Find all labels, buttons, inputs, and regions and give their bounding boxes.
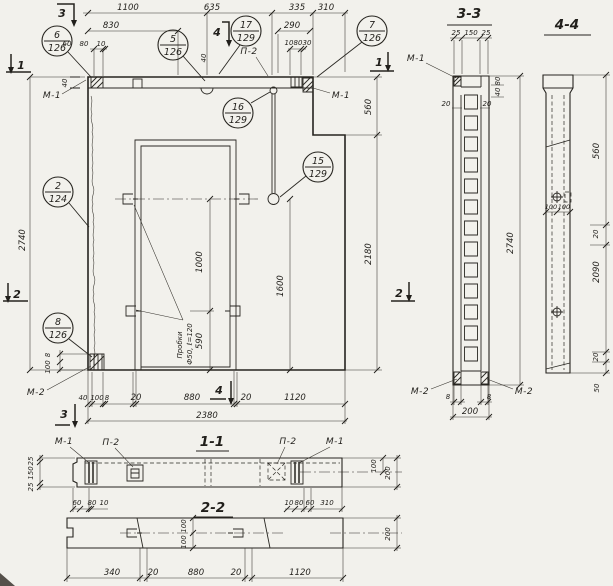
dim-1100: 1100 xyxy=(117,3,139,13)
dim-40-mid: 40 xyxy=(200,53,208,62)
svg-text:126: 126 xyxy=(48,43,66,54)
plug-note-line1: Пробки xyxy=(176,331,184,359)
dim-8-bottom: 8 xyxy=(105,394,110,402)
label-m1-right-1-1: М-1 xyxy=(326,437,344,447)
dim-20b-4-4: 20 xyxy=(592,352,600,361)
svg-text:16: 16 xyxy=(232,102,244,113)
svg-text:15: 15 xyxy=(312,156,324,167)
dim-80-3-3: 80 xyxy=(494,76,502,85)
dim-830: 830 xyxy=(103,21,119,31)
marker-2-right: 2 xyxy=(395,287,403,300)
dim-590: 590 xyxy=(195,333,205,349)
dim-560-4-4: 560 xyxy=(592,143,602,159)
svg-text:7: 7 xyxy=(369,20,375,31)
section-1-1-title: 1-1 xyxy=(200,434,224,450)
dim-25a-3-3: 25 xyxy=(452,29,461,37)
dim-880: 880 xyxy=(184,393,200,403)
dim-880-2-2: 880 xyxy=(188,568,204,578)
dim-100b-2-2: 100 xyxy=(180,535,188,549)
dim-290: 290 xyxy=(284,21,300,31)
marker-4-top: 4 xyxy=(212,26,221,39)
svg-text:2: 2 xyxy=(55,181,61,192)
svg-text:6: 6 xyxy=(54,30,60,41)
svg-text:126: 126 xyxy=(363,33,381,44)
label-m1-3-3: М-1 xyxy=(407,54,425,64)
dim-20-left-3-3: 20 xyxy=(442,100,451,108)
dim-150-3-3: 150 xyxy=(464,29,478,37)
dim-100a-2-2: 100 xyxy=(180,519,188,533)
dim-50-4-4: 50 xyxy=(593,383,601,392)
dim-100a-4-4: 100 xyxy=(545,203,557,211)
dim-25b-1-1: 25 xyxy=(27,482,35,491)
dim-8-left-3-3: 8 xyxy=(446,393,451,401)
dim-2380: 2380 xyxy=(196,411,218,421)
dim-30: 30 xyxy=(303,39,312,47)
svg-text:17: 17 xyxy=(240,20,252,31)
label-m1-topright: М-1 xyxy=(332,91,350,101)
dim-40-3-3: 40 xyxy=(494,87,502,96)
label-p2-top: П-2 xyxy=(240,47,257,57)
marker-4-bottom: 4 xyxy=(214,384,223,397)
svg-text:129: 129 xyxy=(237,33,255,44)
dim-10r-1-1: 10 xyxy=(285,499,294,507)
label-m1-left-1-1: М-1 xyxy=(55,437,73,447)
dim-25a-1-1: 25 xyxy=(27,456,35,465)
marker-3-bottom: 3 xyxy=(60,408,68,421)
dim-2740-3-3: 2740 xyxy=(506,232,516,254)
dim-335: 335 xyxy=(289,3,305,13)
dim-20a-2-2: 20 xyxy=(148,568,159,578)
dim-80: 80 xyxy=(80,40,89,48)
dim-25b-3-3: 25 xyxy=(482,29,491,37)
marker-2-left: 2 xyxy=(13,288,21,301)
label-p2-right-1-1: П-2 xyxy=(279,437,296,447)
svg-text:129: 129 xyxy=(309,169,327,180)
svg-text:126: 126 xyxy=(49,330,67,341)
dim-20a-4-4: 20 xyxy=(592,229,600,238)
marker-1-right: 1 xyxy=(375,56,383,69)
dim-20-right: 20 xyxy=(241,393,252,403)
svg-text:129: 129 xyxy=(229,115,247,126)
dim-200-3-3: 200 xyxy=(462,407,478,417)
drawing-sheet: 1100 635 335 310 830 290 60 80 10 10 80 … xyxy=(0,0,613,586)
marker-1-left: 1 xyxy=(17,59,25,72)
dim-8-corner: 8 xyxy=(44,352,52,357)
dim-200-2-2: 200 xyxy=(384,527,392,541)
dim-10-1-1: 10 xyxy=(100,499,109,507)
svg-text:124: 124 xyxy=(49,194,67,205)
dim-10: 10 xyxy=(97,40,106,48)
dim-20b-2-2: 20 xyxy=(231,568,242,578)
label-m2-right-3-3: М-2 xyxy=(515,387,533,397)
section-2-2-title: 2-2 xyxy=(201,500,225,516)
dim-200-1-1: 200 xyxy=(384,466,392,480)
dim-2180: 2180 xyxy=(364,243,374,265)
dim-310-1-1: 310 xyxy=(320,499,334,507)
dim-100b-4-4: 100 xyxy=(558,203,570,211)
dim-100-bottom: 100 xyxy=(90,394,104,402)
dim-60r-1-1: 60 xyxy=(306,499,315,507)
label-m2-bottomleft: М-2 xyxy=(27,388,45,398)
dim-8-right-3-3: 8 xyxy=(487,393,492,401)
dim-340-2-2: 340 xyxy=(104,568,120,578)
dim-100-corner: 100 xyxy=(44,360,52,374)
dim-1120: 1120 xyxy=(284,393,306,403)
marker-3-top: 3 xyxy=(58,7,66,20)
panel-working-drawing: 1100 635 335 310 830 290 60 80 10 10 80 … xyxy=(0,0,613,586)
plug-note-line2: Ф50, ℓ=120 xyxy=(186,323,194,365)
section-3-3-title: 3-3 xyxy=(457,6,481,22)
dim-1600: 1600 xyxy=(276,275,286,297)
svg-text:126: 126 xyxy=(164,47,182,58)
dim-20-left: 20 xyxy=(131,393,142,403)
dim-635: 635 xyxy=(204,3,220,13)
label-p2-left-1-1: П-2 xyxy=(102,438,119,448)
dim-80r-1-1: 80 xyxy=(295,499,304,507)
dim-40-bottom: 40 xyxy=(79,394,88,402)
svg-text:5: 5 xyxy=(170,34,176,45)
dim-20-right-3-3: 20 xyxy=(483,100,492,108)
dim-2740: 2740 xyxy=(18,229,28,251)
dim-40-left: 40 xyxy=(61,78,69,87)
section-4-4-title: 4-4 xyxy=(554,17,579,33)
dim-2090-4-4: 2090 xyxy=(592,261,602,283)
svg-text:8: 8 xyxy=(55,317,61,328)
dim-80-1-1: 80 xyxy=(88,499,97,507)
dim-1000: 1000 xyxy=(195,251,205,273)
dim-100-1-1: 100 xyxy=(370,459,378,473)
dim-560: 560 xyxy=(364,99,374,115)
label-m2-left-3-3: М-2 xyxy=(411,387,429,397)
dim-60-1-1: 60 xyxy=(73,499,82,507)
dim-150-1-1: 150 xyxy=(27,466,35,480)
dim-310: 310 xyxy=(318,3,334,13)
dim-1120-2-2: 1120 xyxy=(289,568,311,578)
label-m1-topleft: М-1 xyxy=(43,91,61,101)
